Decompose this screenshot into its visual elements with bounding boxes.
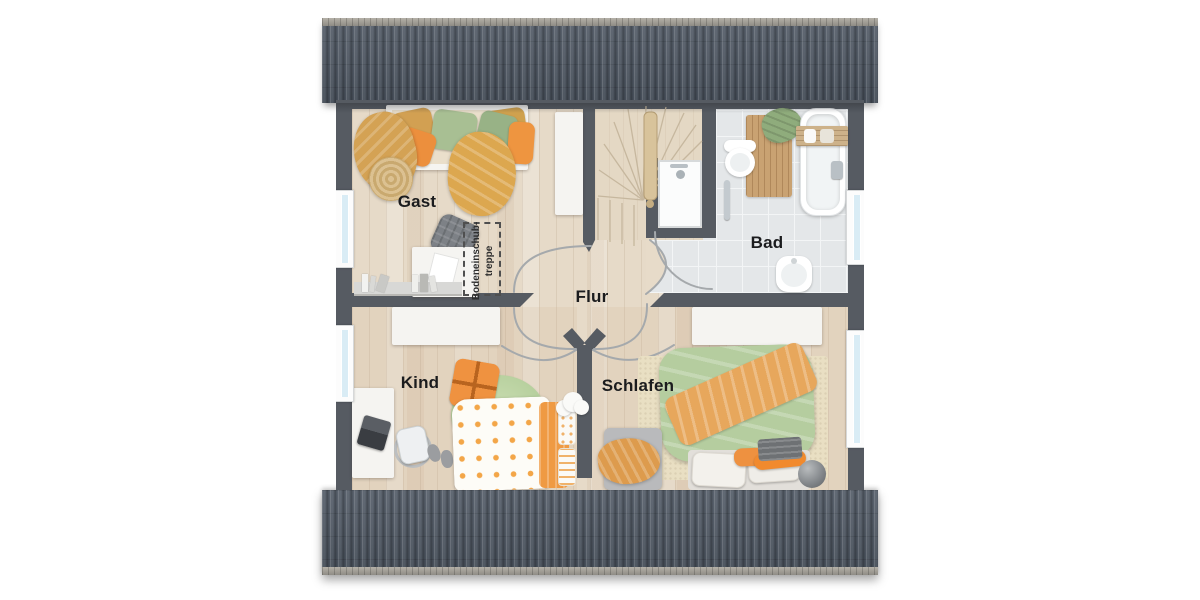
- window-child: [336, 325, 354, 402]
- shower-fixture: [670, 164, 688, 168]
- tall-wardrobe: [555, 112, 583, 215]
- wall-shelf: [354, 282, 462, 296]
- bathtub-faucet: [831, 161, 843, 179]
- label-hallway: Flur: [552, 287, 632, 307]
- door-arc-hall-se: [594, 304, 647, 349]
- child-wardrobe: [392, 307, 500, 345]
- book: [420, 274, 428, 292]
- book: [412, 275, 418, 292]
- window-bathroom: [846, 190, 864, 265]
- door-arc-guest: [514, 246, 591, 292]
- attic-hatch-label-line2: treppe: [484, 215, 497, 307]
- label-guest-room: Gast: [377, 192, 457, 212]
- toilet-seat: [730, 153, 750, 172]
- shower-tray: [658, 160, 702, 228]
- stair-handrail: [644, 112, 657, 200]
- child-bed-duvet: [451, 396, 552, 490]
- door-arc-hall-sw: [514, 308, 576, 349]
- roof-bottom-ridge: [322, 567, 878, 575]
- roof-top: [322, 18, 878, 103]
- window-guest: [336, 190, 354, 268]
- towel-roll: [820, 129, 834, 143]
- attic-hatch-label-line1: Bodeneinschub-: [471, 215, 484, 307]
- label-bathroom: Bad: [727, 233, 807, 253]
- towel-rail: [724, 180, 730, 220]
- stair-newel: [646, 200, 654, 208]
- floor-plan: Bodeneinschub- treppe: [336, 100, 864, 490]
- bidet-basin: [781, 263, 807, 287]
- bidet-faucet: [791, 258, 797, 264]
- shower-drain: [676, 170, 685, 179]
- wall-shower-south: [646, 228, 716, 238]
- wall-left: [336, 100, 352, 490]
- window-glass: [853, 195, 860, 260]
- window-glass: [853, 335, 860, 443]
- door-arc-bathroom: [655, 232, 712, 289]
- attic-hatch-label: Bodeneinschub- treppe: [471, 215, 499, 307]
- wall-bath-bedroom: [650, 293, 848, 307]
- roof-top-ridge: [322, 18, 878, 26]
- cloud-puff: [574, 400, 589, 415]
- window-glass: [341, 195, 348, 263]
- label-bedroom: Schlafen: [558, 376, 718, 396]
- wall-shower-east: [702, 106, 716, 228]
- book: [362, 274, 368, 292]
- wall-guest-stairs: [583, 108, 595, 252]
- child-bed-pillow: [558, 448, 576, 486]
- roof-bottom: [322, 490, 878, 575]
- page: Bodeneinschub- treppe: [0, 0, 1200, 600]
- bathtub: [800, 108, 846, 216]
- toilet: [724, 140, 756, 178]
- bedroom-wardrobe: [692, 307, 822, 345]
- sphere-stool: [798, 460, 826, 488]
- label-child-room: Kind: [380, 373, 460, 393]
- window-bedroom: [846, 330, 864, 448]
- roof-shadow: [336, 103, 864, 113]
- bidet: [776, 256, 812, 292]
- window-glass: [341, 330, 348, 397]
- bath-caddy: [796, 126, 848, 146]
- towel-roll: [804, 129, 816, 143]
- folded-blanket: [757, 436, 802, 461]
